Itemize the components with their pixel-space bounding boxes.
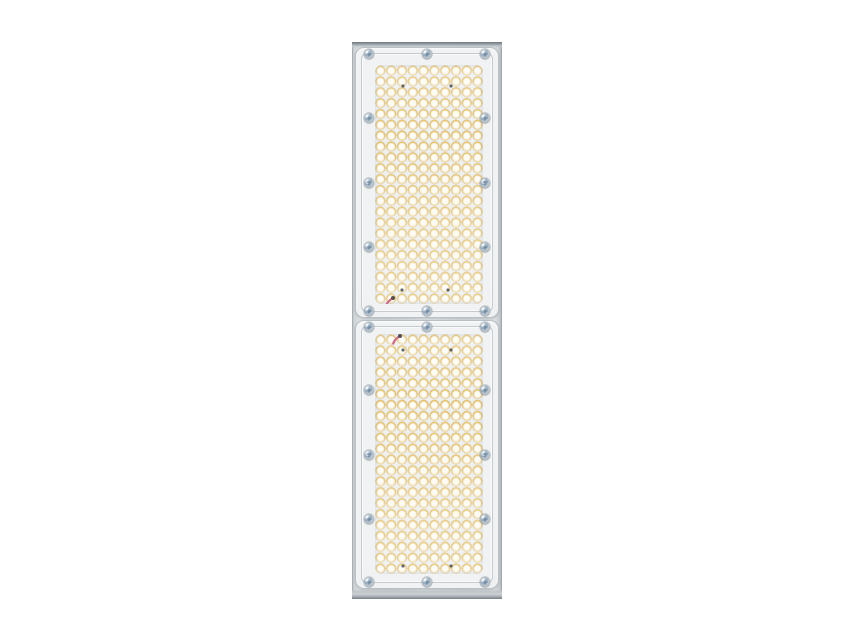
phillips-screw-icon [481,322,490,331]
phillips-screw-icon [364,307,373,316]
feed-wire-detail [382,294,396,304]
phillips-screw-icon [423,578,432,587]
phillips-screw-icon [364,243,373,252]
phillips-screw-icon [364,49,373,58]
phillips-screw-icon [364,514,373,523]
phillips-screw-icon [481,178,490,187]
product-photo [0,0,853,640]
phillips-screw-icon [423,49,432,58]
board-screw-dot [449,85,452,88]
phillips-screw-icon [423,307,432,316]
feed-wire-detail [389,334,403,344]
phillips-screw-icon [481,243,490,252]
phillips-screw-icon [364,322,373,331]
phillips-screw-icon [364,113,373,122]
phillips-screw-icon [423,322,432,331]
board-screw-dot [402,564,405,567]
phillips-screw-icon [481,307,490,316]
board-screw-dot [447,288,450,291]
board-screw-dot [449,349,452,352]
optic-module-top [355,47,499,318]
phillips-screw-icon [364,578,373,587]
phillips-screw-icon [364,450,373,459]
phillips-screw-icon [481,514,490,523]
phillips-screw-icon [481,49,490,58]
phillips-screw-icon [364,178,373,187]
optic-module-bottom [355,320,499,589]
board-screw-dot [449,564,452,567]
housing-bottom-cap [352,589,502,599]
board-screw-dot [402,349,405,352]
board-screw-dot [401,288,404,291]
led-optic-array [375,65,483,304]
led-luminaire [352,42,502,599]
phillips-screw-icon [481,450,490,459]
phillips-screw-icon [481,578,490,587]
phillips-screw-icon [481,113,490,122]
phillips-screw-icon [364,386,373,395]
board-screw-dot [402,85,405,88]
phillips-screw-icon [481,386,490,395]
led-optic-array [375,334,483,574]
